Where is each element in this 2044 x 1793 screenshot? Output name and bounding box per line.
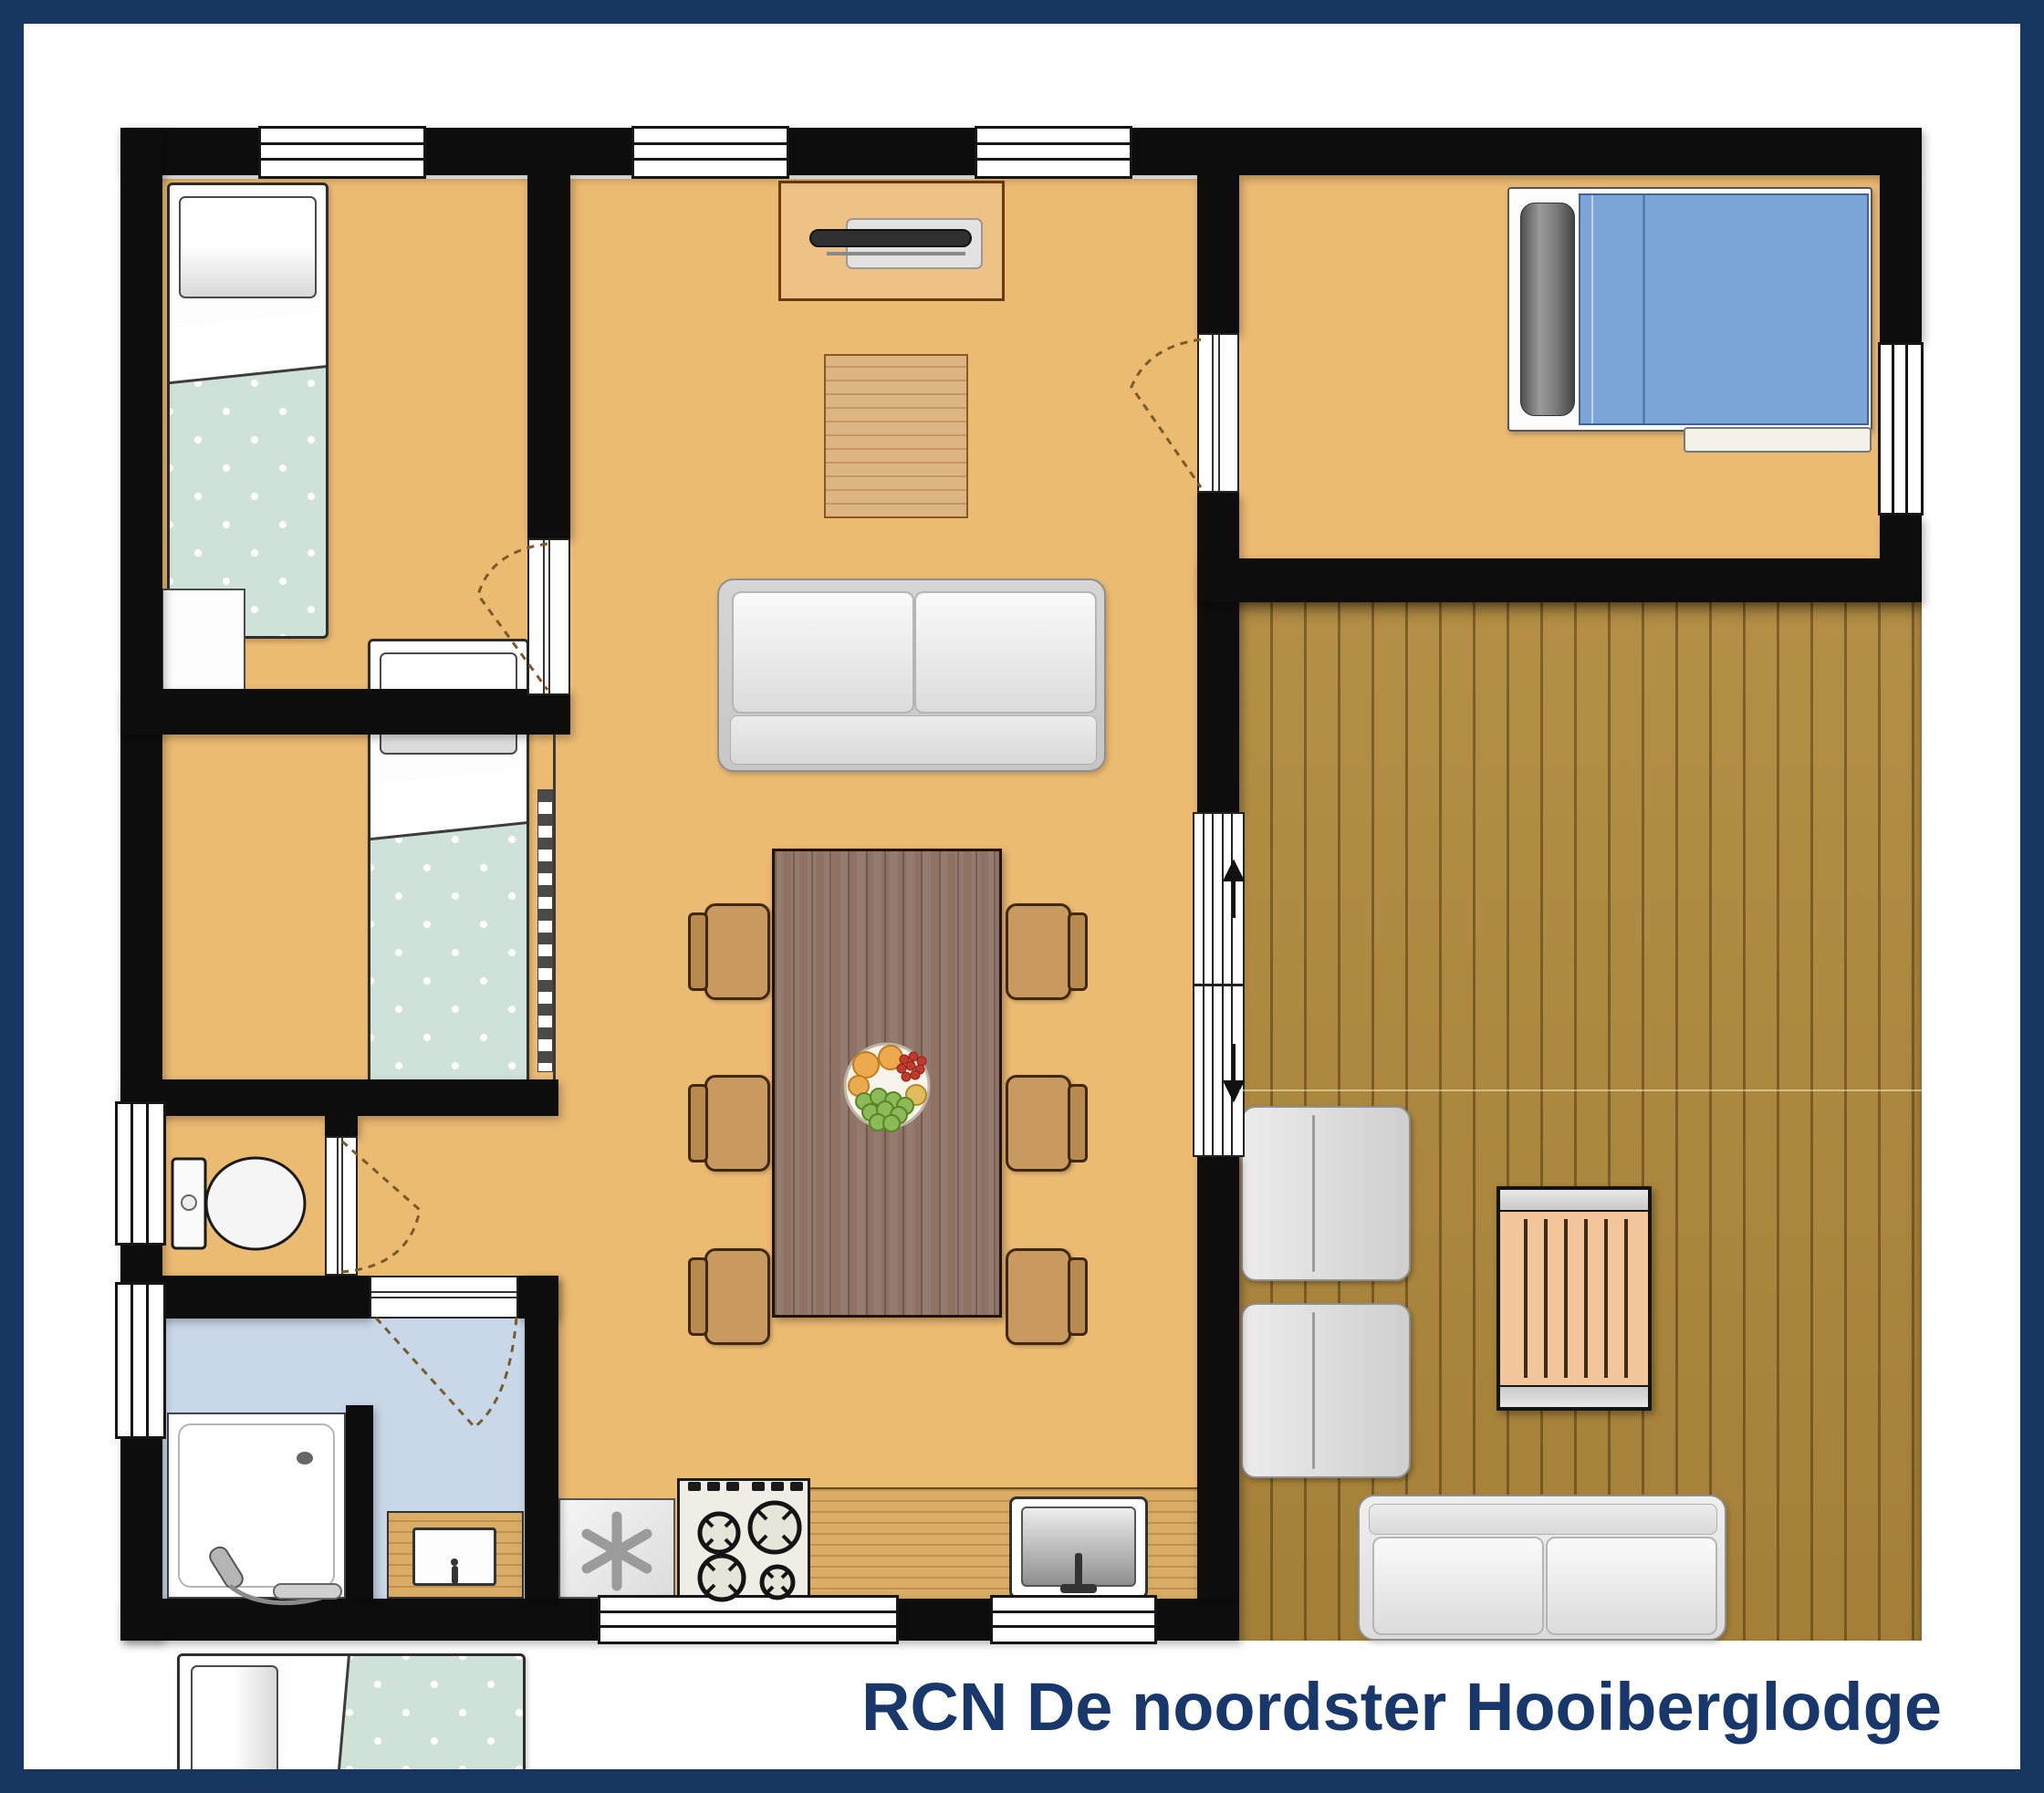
deck-sofa-cushion — [1546, 1537, 1717, 1635]
wall-toilet-stub — [325, 1116, 358, 1136]
pillow — [179, 196, 317, 298]
stove — [677, 1478, 810, 1599]
dining-chair-back — [1068, 912, 1088, 991]
wall-bedroomR-right-b — [1880, 516, 1922, 558]
single-bed-3 — [177, 1653, 526, 1793]
door-bathroom — [370, 1276, 518, 1319]
tv-cabinet — [778, 181, 1005, 301]
table-end-cap — [1500, 1190, 1648, 1212]
dining-table — [772, 849, 1002, 1318]
dining-chair-back — [688, 912, 708, 991]
deck-sofa-back — [1369, 1504, 1717, 1535]
lounge-split — [1312, 1312, 1315, 1470]
deck-sofa-cushion — [1372, 1537, 1544, 1635]
table-slats — [1507, 1219, 1641, 1378]
dining-chair — [704, 1248, 770, 1345]
table-end-cap — [1500, 1385, 1648, 1407]
wall-bedroom2-bottom — [120, 1079, 558, 1116]
wall-bathroom-right — [525, 1276, 558, 1599]
dining-chair-back — [688, 1084, 708, 1162]
wall-bedroom1-bottom — [120, 689, 570, 735]
wall-right-lodge-a — [1197, 175, 1239, 333]
vanity-basin — [412, 1527, 496, 1586]
sink-basin — [1021, 1506, 1136, 1587]
lounge-chair — [1241, 1303, 1411, 1478]
sofa-seat-front — [730, 715, 1097, 765]
lounge-chair — [1241, 1106, 1411, 1281]
sliding-door-bedroom2 — [537, 789, 553, 1072]
kitchen-sink — [1009, 1496, 1148, 1599]
pillow — [191, 1665, 278, 1793]
wall-bedroomR-bottom — [1197, 558, 1922, 602]
deck-slat-table — [1496, 1186, 1652, 1411]
window-top-2 — [631, 126, 789, 179]
duvet-fold-line — [1642, 195, 1645, 423]
dining-chair-back — [688, 1257, 708, 1336]
dining-chair — [704, 1075, 770, 1172]
single-bed-1 — [167, 182, 328, 639]
window-left-toilet — [115, 1101, 166, 1246]
deck-sofa — [1358, 1495, 1726, 1641]
dining-chair — [1006, 1075, 1071, 1172]
nightstand — [162, 589, 245, 691]
deck-plank-seam — [1239, 1089, 1922, 1091]
door-toilet — [325, 1136, 358, 1276]
window-bedroomR-right — [1878, 342, 1924, 516]
wall-bedroomR-right-a — [1880, 175, 1922, 342]
sliding-door-deck — [1193, 812, 1245, 1157]
wall-right-lodge-c — [1197, 1157, 1239, 1599]
window-bottom-1 — [598, 1595, 899, 1644]
duvet-edge-line — [1591, 195, 1593, 423]
wall-right-lodge-b — [1197, 493, 1239, 812]
living-sofa — [717, 579, 1106, 772]
window-top-1 — [258, 126, 426, 179]
pillow-gray — [1520, 203, 1575, 416]
dining-chair — [704, 903, 770, 1000]
wall-bedroom1-right — [527, 175, 570, 538]
fridge-freezer — [558, 1498, 675, 1599]
sofa-cushion — [732, 591, 914, 714]
page-title: RCN De noordster Hooiberglodge — [861, 1668, 1942, 1746]
rug — [824, 354, 968, 518]
duvet-blue — [1579, 193, 1869, 425]
window-bottom-2 — [990, 1595, 1157, 1644]
shower-tray-inner — [178, 1423, 335, 1588]
window-left-bathroom — [115, 1282, 166, 1439]
dining-chair — [1006, 903, 1071, 1000]
shower-tray — [167, 1413, 346, 1599]
door-bedroom1 — [527, 538, 570, 695]
bed-foot-shelf — [1684, 427, 1872, 453]
sofa-cushion — [914, 591, 1097, 714]
dining-chair-back — [1068, 1084, 1088, 1162]
sliding-door-bedroom2-track — [553, 735, 556, 1079]
window-top-3 — [975, 126, 1132, 179]
door-bedroomR — [1197, 333, 1239, 493]
dining-chair-back — [1068, 1257, 1088, 1336]
floor-plan-page: RCN De noordster Hooiberglodge — [0, 0, 2044, 1793]
wall-shower-right — [346, 1405, 373, 1599]
lounge-split — [1312, 1115, 1315, 1273]
dining-chair — [1006, 1248, 1071, 1345]
